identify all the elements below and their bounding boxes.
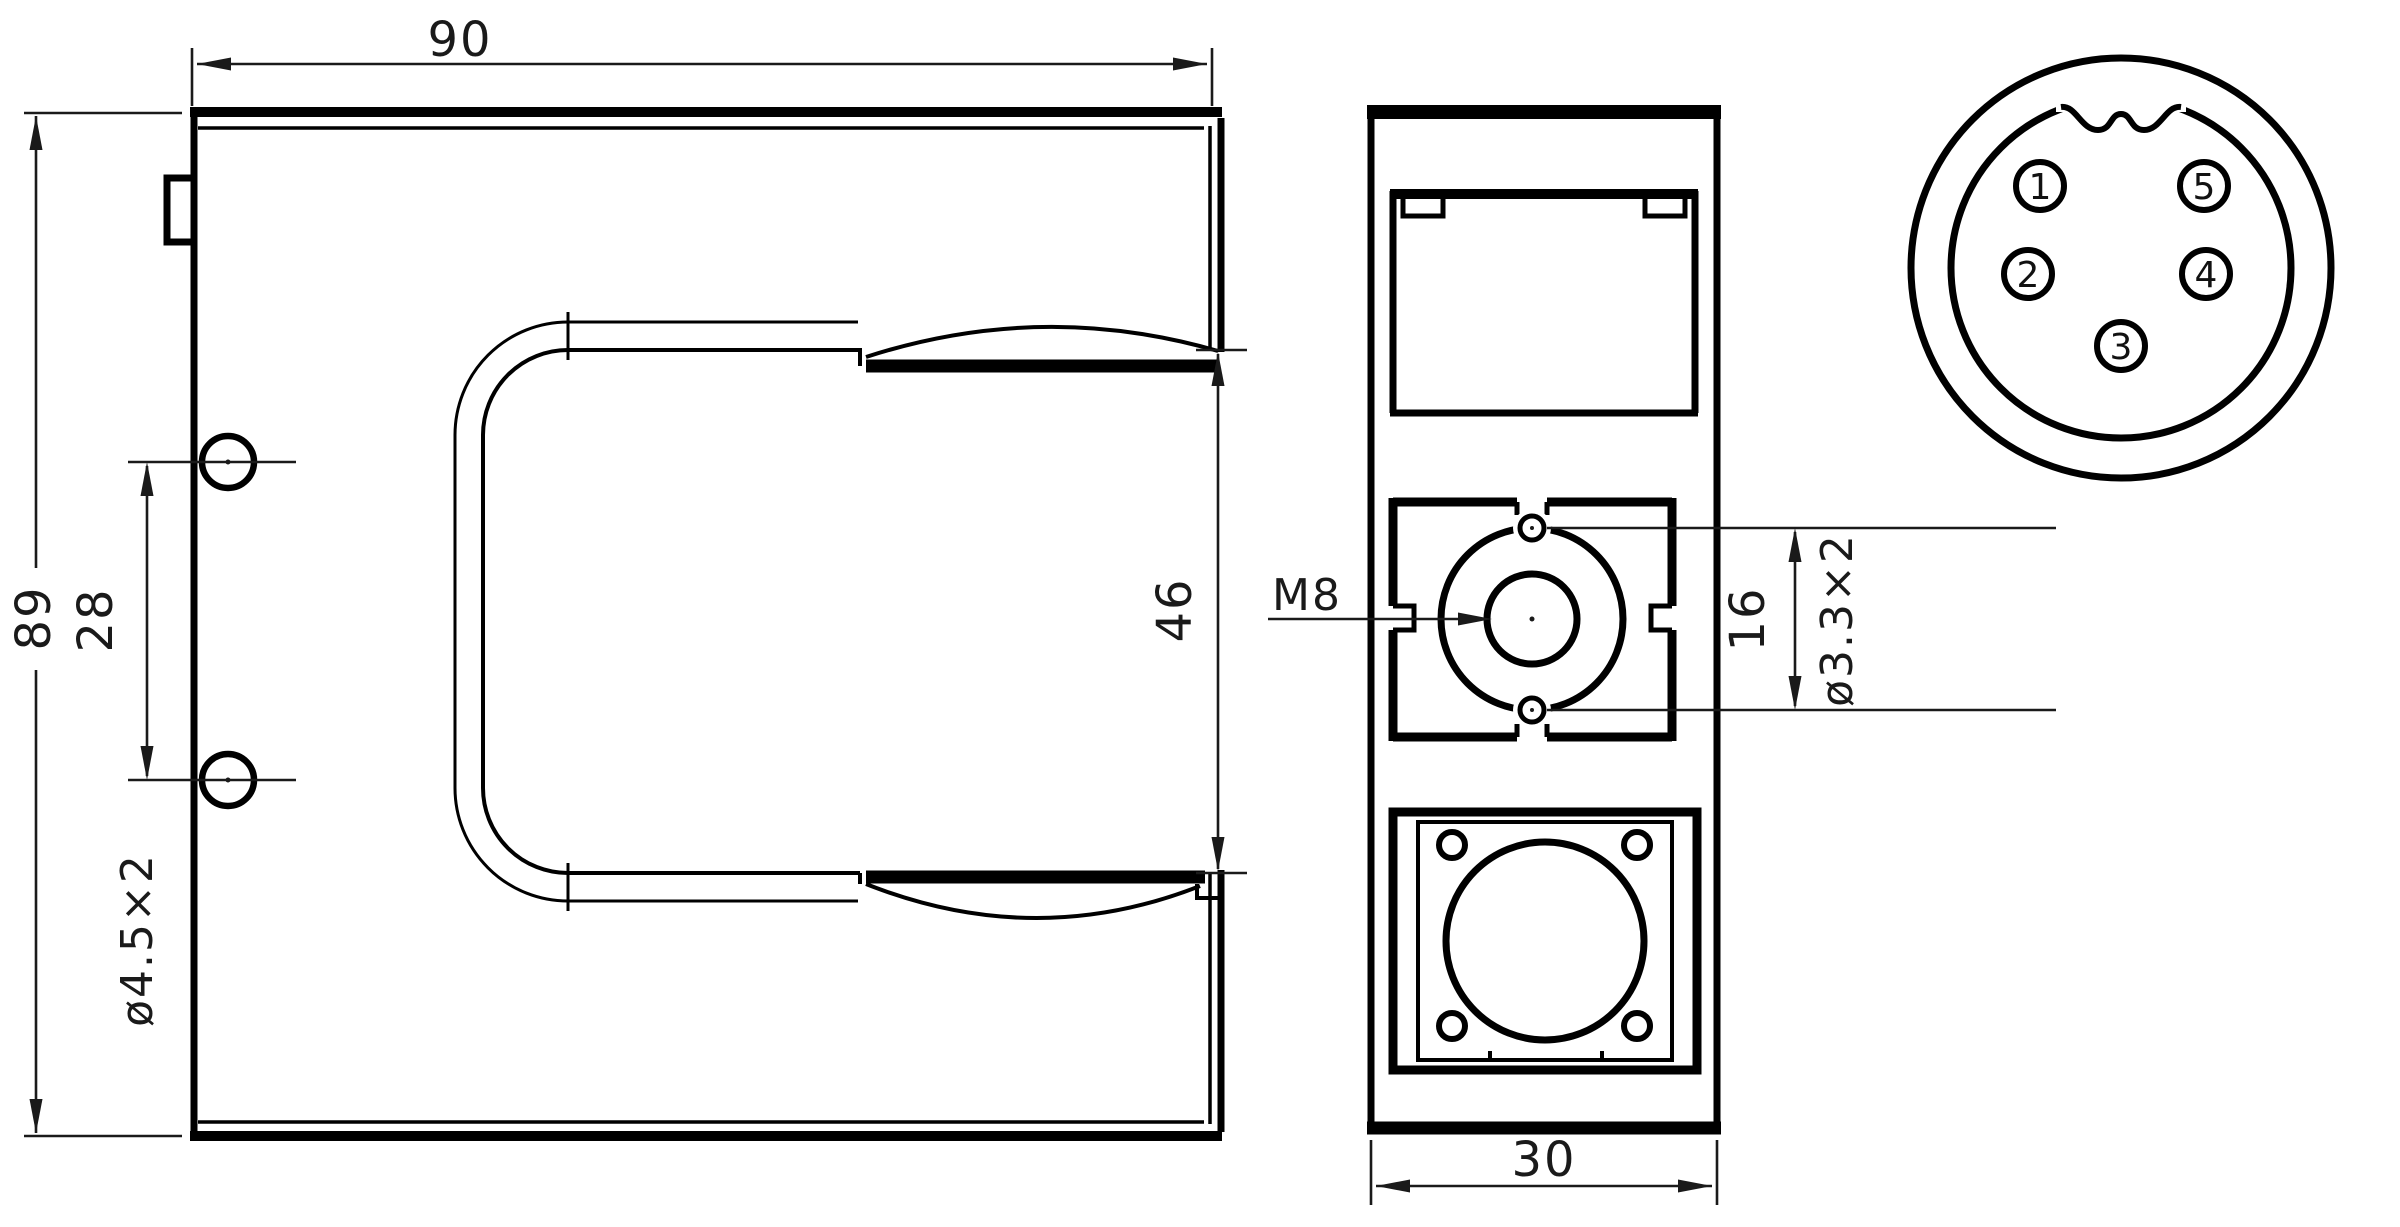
upper-lens-arc bbox=[866, 327, 1218, 357]
pin-3: 3 bbox=[2097, 322, 2145, 370]
pin-1: 1 bbox=[2016, 162, 2064, 210]
dim-90-arrow-right bbox=[1173, 58, 1207, 71]
m8-side-notch-right bbox=[1651, 606, 1672, 630]
dim-hole-spacing-28: 28 bbox=[68, 462, 296, 780]
dim-89-arrow-bottom bbox=[30, 1099, 43, 1133]
dim-89-label: 89 bbox=[6, 585, 62, 650]
slot-contour bbox=[483, 350, 862, 873]
dim-46-label: 46 bbox=[1147, 577, 1203, 642]
pin-4-label: 4 bbox=[2195, 255, 2218, 296]
front-view: 90 89 28 ø4.5×2 bbox=[6, 12, 1247, 1140]
dim-28-label: 28 bbox=[68, 587, 124, 652]
pin-5-label: 5 bbox=[2193, 167, 2216, 208]
connector-flange bbox=[1393, 812, 1697, 1070]
dim-width-90: 90 bbox=[192, 12, 1212, 106]
dim-16-arrow-bottom bbox=[1789, 676, 1802, 710]
window-notch-left bbox=[1403, 199, 1443, 216]
connector-outer-ring bbox=[1911, 58, 2331, 478]
dim-28-arrow-bottom bbox=[141, 746, 154, 780]
dim-hole-size-label: ø4.5×2 bbox=[112, 853, 163, 1027]
pin-3-label: 3 bbox=[2110, 327, 2133, 368]
dim-28-arrow-top bbox=[141, 462, 154, 496]
m8-center-dot bbox=[1530, 617, 1535, 622]
dim-16-label: 16 bbox=[1720, 586, 1776, 651]
dim-16-arrow-top bbox=[1789, 528, 1802, 562]
flange-screw-bottom-left bbox=[1439, 1013, 1465, 1039]
left-tab bbox=[167, 178, 194, 242]
pin-2: 2 bbox=[2004, 250, 2052, 298]
dim-depth-30: 30 bbox=[1371, 1132, 1717, 1205]
flange-screw-top-right bbox=[1624, 832, 1650, 858]
flange-connector-circle bbox=[1446, 842, 1644, 1040]
keyway-mask bbox=[2056, 84, 2186, 112]
slot-window bbox=[1390, 191, 1698, 413]
technical-drawing-page: 90 89 28 ø4.5×2 bbox=[0, 0, 2400, 1227]
pin-4: 4 bbox=[2182, 250, 2230, 298]
pin-2-label: 2 bbox=[2017, 255, 2040, 296]
screw-hole-top-center bbox=[1530, 526, 1534, 530]
dim-90-label: 90 bbox=[427, 12, 492, 68]
flange-screw-bottom-right bbox=[1624, 1013, 1650, 1039]
window-notch-right bbox=[1645, 199, 1685, 216]
m8-label: M8 bbox=[1272, 570, 1342, 621]
m8-callout: M8 bbox=[1268, 570, 1492, 626]
side-view: M8 16 ø3.3×2 30 bbox=[1268, 108, 2056, 1205]
dim-89-arrow-top bbox=[30, 116, 43, 150]
pin-5: 5 bbox=[2180, 162, 2228, 210]
dim-side-hole-size-label: ø3.3×2 bbox=[1812, 533, 1863, 707]
dim-slot-width-46: 46 bbox=[1147, 350, 1247, 873]
pin-1-label: 1 bbox=[2029, 167, 2052, 208]
dim-90-arrow-left bbox=[197, 58, 231, 71]
dim-30-arrow-left bbox=[1376, 1180, 1410, 1193]
lower-lens-arc bbox=[866, 884, 1200, 918]
connector-pinout-view: 1 5 2 4 3 bbox=[1911, 58, 2331, 478]
dim-46-arrow-bottom bbox=[1212, 837, 1225, 871]
dim-30-label: 30 bbox=[1511, 1132, 1576, 1188]
dim-30-arrow-right bbox=[1678, 1180, 1712, 1193]
screw-hole-bottom-center bbox=[1530, 708, 1534, 712]
slot-chamfer-seam bbox=[455, 322, 858, 901]
technical-drawing: 90 89 28 ø4.5×2 bbox=[0, 0, 2400, 1227]
flange-screw-top-left bbox=[1439, 832, 1465, 858]
